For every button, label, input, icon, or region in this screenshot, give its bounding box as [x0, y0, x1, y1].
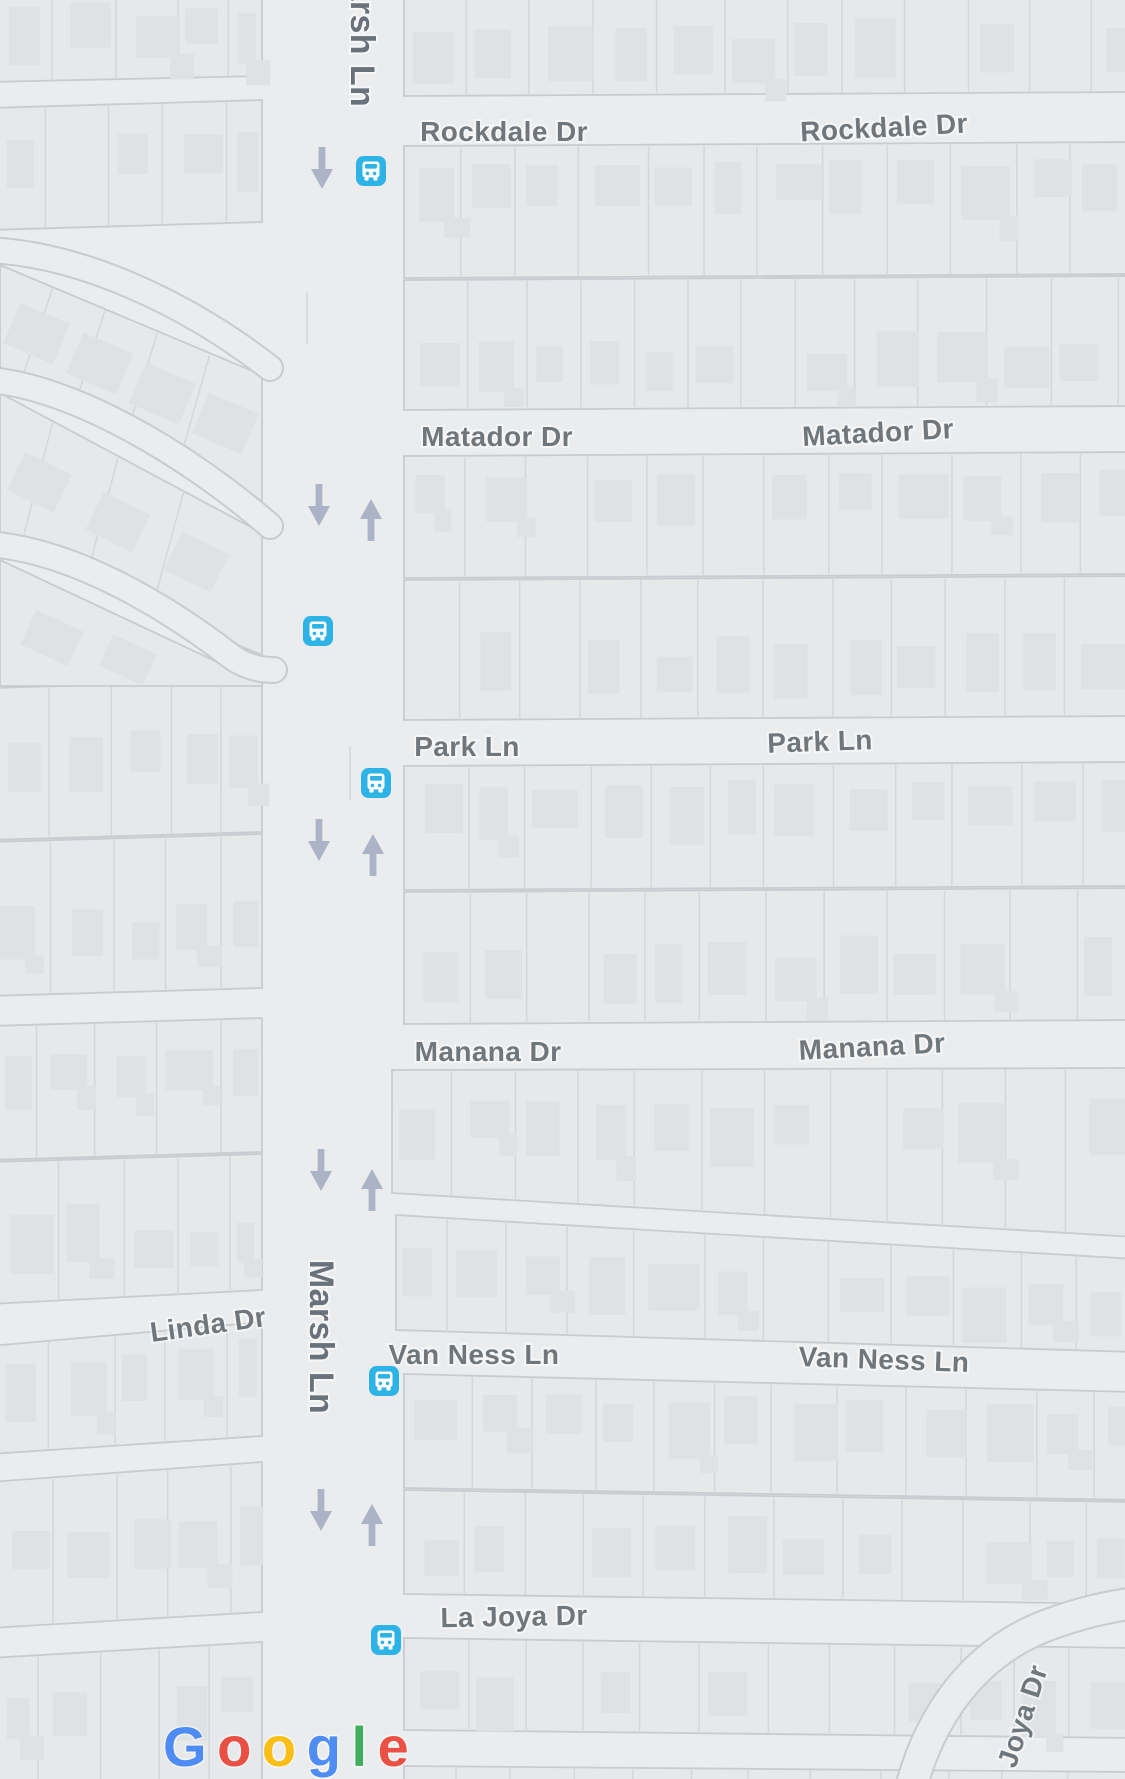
- street-label-manana-dr-left: Manana Dr: [415, 1036, 562, 1067]
- bus-stop-icon[interactable]: [369, 1366, 399, 1396]
- google-logo-letter: e: [378, 1715, 408, 1778]
- google-logo-letter: o: [262, 1715, 295, 1778]
- map-canvas[interactable]: Marsh Ln Rockdale Dr Rockdale Dr Matador…: [0, 0, 1125, 1779]
- street-label-la-joya-dr: La Joya Dr: [440, 1600, 588, 1634]
- street-label-van-ness-ln-right: Van Ness Ln: [798, 1341, 970, 1378]
- street-label-matador-dr-left: Matador Dr: [421, 421, 573, 452]
- google-logo-letter: l: [351, 1715, 366, 1778]
- street-label-rockdale-dr-left: Rockdale Dr: [420, 116, 588, 147]
- bus-stop-icon[interactable]: [303, 616, 333, 646]
- google-logo[interactable]: G o o g l e: [163, 1715, 408, 1778]
- bus-stop-icon[interactable]: [371, 1625, 401, 1655]
- street-label-marsh-ln-top: Marsh Ln: [343, 0, 381, 107]
- street-label-van-ness-ln-left: Van Ness Ln: [389, 1339, 560, 1370]
- street-label-marsh-ln-main: Marsh Ln: [302, 1260, 340, 1414]
- google-logo-letter: o: [217, 1715, 250, 1778]
- bus-stop-icon[interactable]: [361, 768, 391, 798]
- street-label-park-ln-left: Park Ln: [414, 731, 520, 762]
- street-label-park-ln-right: Park Ln: [767, 724, 874, 759]
- google-logo-letter: G: [163, 1715, 206, 1778]
- google-logo-letter: g: [307, 1715, 340, 1778]
- bus-stop-icon[interactable]: [356, 156, 386, 186]
